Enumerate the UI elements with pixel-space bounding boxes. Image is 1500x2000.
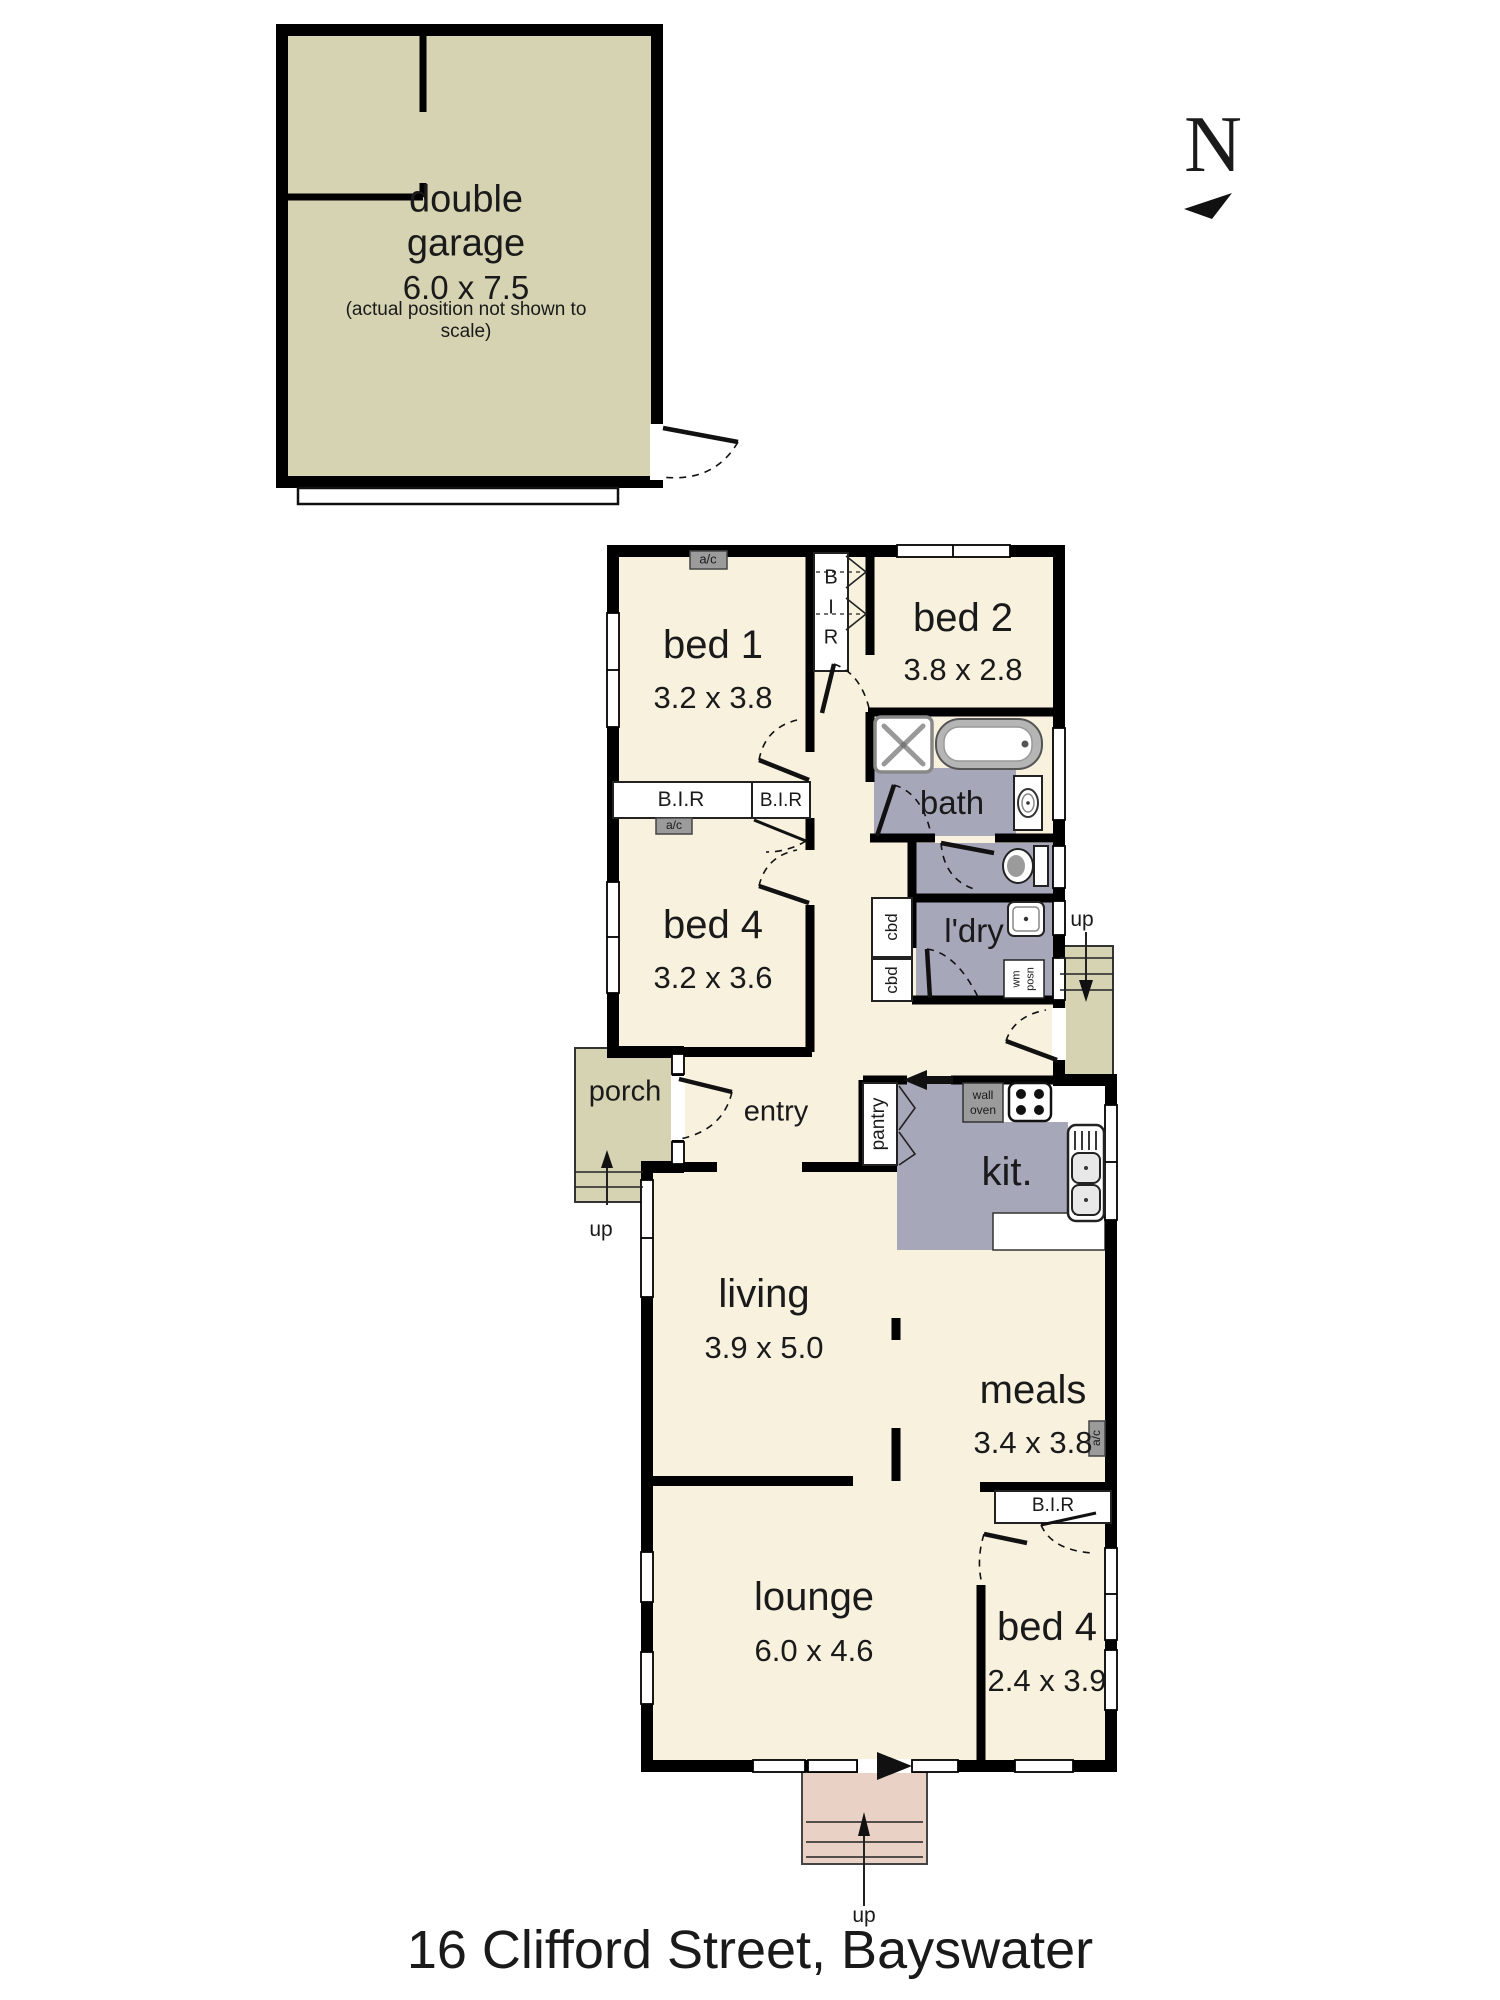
window-front-2	[808, 1760, 857, 1772]
toilet-cistern	[1034, 846, 1048, 886]
bir-label-bed4-rear: B.I.R	[1032, 1495, 1074, 1517]
wall-oven-label-2: oven	[970, 1104, 996, 1118]
room-label-bath: bath	[920, 784, 984, 822]
room-dims-bed4-rear: 2.4 x 3.9	[988, 1663, 1107, 1699]
window-lounge-1	[641, 1552, 653, 1602]
room-label-bed4-rear: bed 4	[997, 1604, 1097, 1650]
entry-sidelight-1	[672, 1054, 684, 1074]
north-arrow-icon	[1184, 193, 1232, 219]
garage-roller-door	[298, 488, 618, 504]
room-dims-bed1: 3.2 x 3.8	[654, 680, 773, 716]
room-label-bed2: bed 2	[913, 595, 1013, 641]
window-wc	[1053, 846, 1065, 888]
wall-oven-label-1: wall	[973, 1089, 994, 1103]
bir-letter-r: R	[824, 627, 838, 650]
cbd-label-2: cbd	[882, 966, 902, 993]
pantry-label: pantry	[868, 1098, 890, 1151]
bir-letter-i: I	[828, 597, 834, 620]
entry-sidelight-2	[672, 1142, 684, 1164]
room-dims-meals: 3.4 x 3.8	[974, 1425, 1093, 1461]
up-label-porch: up	[589, 1218, 612, 1242]
room-label-entry: entry	[744, 1095, 808, 1128]
room-dims-living: 3.9 x 5.0	[705, 1330, 824, 1366]
room-label-laundry: l'dry	[944, 912, 1003, 950]
bir-letter-b: B	[824, 567, 837, 590]
cooktop	[1009, 1083, 1051, 1121]
window-laundry-2	[1053, 958, 1065, 1000]
window-bed4-rear-2	[1105, 1650, 1117, 1710]
room-dims-bed4-middle: 3.2 x 3.6	[654, 960, 773, 996]
bir-label-hall: B.I.R	[760, 790, 802, 812]
floorplan-page: double garage 6.0 x 7.5 (actual position…	[0, 0, 1500, 2000]
room-dims-lounge: 6.0 x 4.6	[755, 1633, 874, 1669]
room-label-lounge: lounge	[754, 1574, 874, 1620]
ac-label-bed1: a/c	[699, 553, 716, 568]
window-laundry-1	[1053, 901, 1065, 935]
room-label-living: living	[718, 1271, 809, 1317]
floorplan-drawing	[0, 0, 1500, 2000]
room-label-meals: meals	[980, 1367, 1087, 1413]
garage-label: double garage	[351, 178, 581, 265]
garage-structure	[282, 30, 664, 504]
garage-note: (actual position not shown to scale)	[341, 299, 591, 343]
room-label-bed1: bed 1	[663, 622, 763, 668]
bir-label-bed1: B.I.R	[658, 788, 705, 812]
wm-posn-label-2: posn	[1025, 967, 1038, 991]
room-label-bed4-middle: bed 4	[663, 902, 763, 948]
window-front-4	[1015, 1760, 1073, 1772]
room-label-kitchen: kit.	[981, 1149, 1032, 1195]
garage-door-gap	[650, 424, 664, 480]
wm-posn-label-1: wm	[1011, 970, 1024, 987]
window-bath	[1053, 728, 1065, 820]
page-title: 16 Clifford Street, Bayswater	[407, 1919, 1093, 1981]
window-front-1	[753, 1760, 805, 1772]
up-label-landing: up	[1070, 908, 1093, 932]
room-label-porch: porch	[589, 1075, 662, 1108]
window-lounge-2	[641, 1652, 653, 1704]
kitchen-arrow-tail	[927, 1076, 953, 1084]
north-letter: N	[1184, 99, 1242, 191]
room-dims-bed2: 3.8 x 2.8	[904, 652, 1023, 688]
window-front-3	[912, 1760, 958, 1772]
ac-label-bed4: a/c	[666, 819, 682, 833]
cbd-label-1: cbd	[882, 913, 902, 940]
